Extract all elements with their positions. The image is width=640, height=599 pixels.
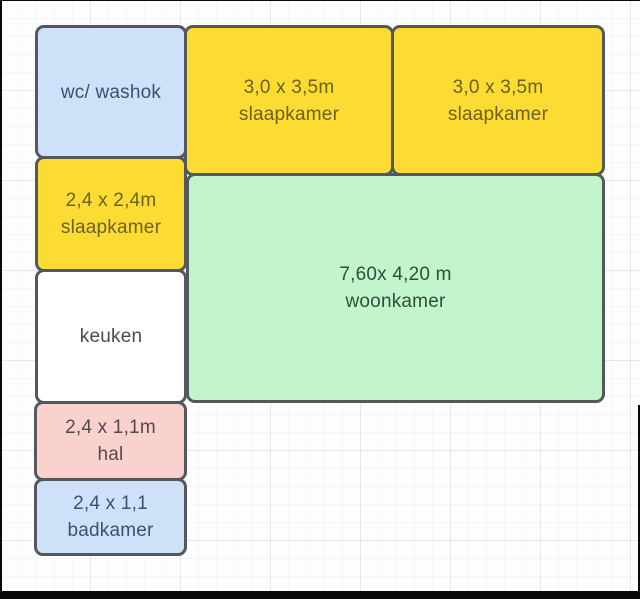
room-dimensions: 7,60x 4,20 m <box>339 261 451 288</box>
room-woonkamer[interactable]: 7,60x 4,20 m woonkamer <box>186 173 605 403</box>
floor-plan-canvas: wc/ washok 3,0 x 3,5m slaapkamer 3,0 x 3… <box>0 0 640 599</box>
room-label: 2,4 x 1,1 badkamer <box>67 490 153 544</box>
room-badkamer[interactable]: 2,4 x 1,1 badkamer <box>34 478 187 556</box>
room-dimensions: 3,0 x 3,5m <box>239 74 339 101</box>
room-label: 2,4 x 2,4m slaapkamer <box>61 187 161 241</box>
room-label: keuken <box>80 323 142 350</box>
room-slaapkamer-small[interactable]: 2,4 x 2,4m slaapkamer <box>35 156 187 272</box>
room-dimensions: 2,4 x 1,1 <box>67 490 153 517</box>
room-slaapkamer-top-right[interactable]: 3,0 x 3,5m slaapkamer <box>391 25 605 176</box>
room-wc-washok[interactable]: wc/ washok <box>35 25 187 159</box>
crop-edge-top <box>0 0 640 1</box>
crop-edge-bottom <box>0 591 640 599</box>
room-dimensions: 2,4 x 1,1m <box>65 414 156 441</box>
room-name: slaapkamer <box>61 214 161 241</box>
room-keuken[interactable]: keuken <box>35 269 187 404</box>
room-label: wc/ washok <box>61 79 161 106</box>
room-name: hal <box>65 441 156 468</box>
room-name: slaapkamer <box>448 101 548 128</box>
room-label: 2,4 x 1,1m hal <box>65 414 156 468</box>
room-dimensions: 3,0 x 3,5m <box>448 74 548 101</box>
room-label: 3,0 x 3,5m slaapkamer <box>239 74 339 128</box>
room-name: wc/ washok <box>61 79 161 106</box>
room-name: keuken <box>80 323 142 350</box>
room-label: 7,60x 4,20 m woonkamer <box>339 261 451 315</box>
room-label: 3,0 x 3,5m slaapkamer <box>448 74 548 128</box>
room-name: badkamer <box>67 517 153 544</box>
room-dimensions: 2,4 x 2,4m <box>61 187 161 214</box>
room-slaapkamer-top-left[interactable]: 3,0 x 3,5m slaapkamer <box>184 25 394 176</box>
room-hal[interactable]: 2,4 x 1,1m hal <box>34 401 187 481</box>
crop-edge-left <box>0 0 2 599</box>
room-name: slaapkamer <box>239 101 339 128</box>
room-name: woonkamer <box>339 288 451 315</box>
